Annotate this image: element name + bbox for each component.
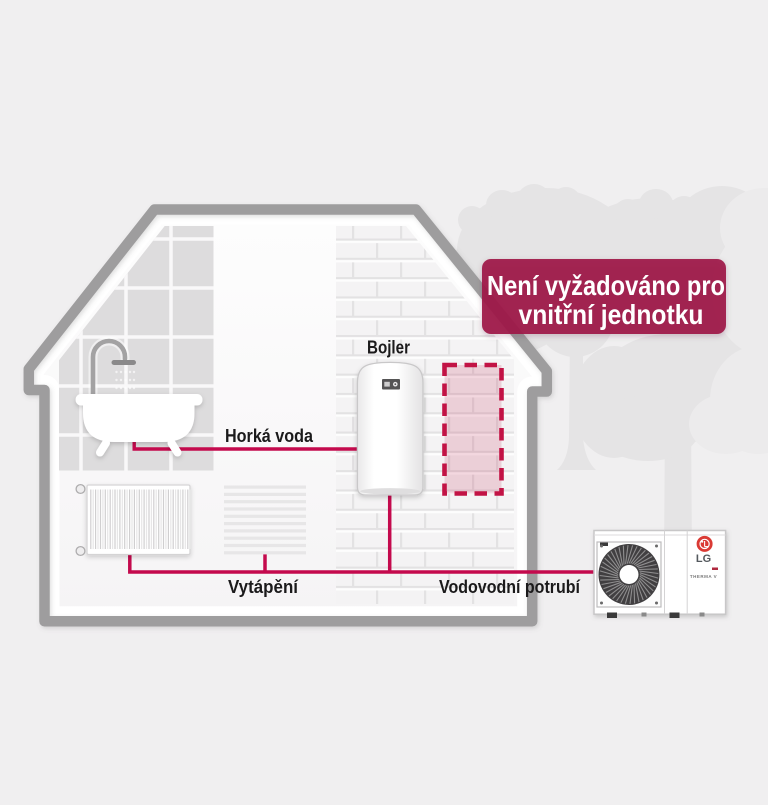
svg-text:Bojler: Bojler <box>367 337 410 358</box>
svg-text:Vodovodní potrubí: Vodovodní potrubí <box>439 576 581 597</box>
svg-text:vnitřní jednotku: vnitřní jednotku <box>519 299 704 330</box>
svg-text:Horká voda: Horká voda <box>225 425 314 446</box>
svg-text:Není vyžadováno pro: Není vyžadováno pro <box>487 270 725 301</box>
svg-text:THERMA V: THERMA V <box>690 574 717 579</box>
svg-text:Vytápění: Vytápění <box>228 576 299 597</box>
svg-text:LG: LG <box>696 553 711 565</box>
